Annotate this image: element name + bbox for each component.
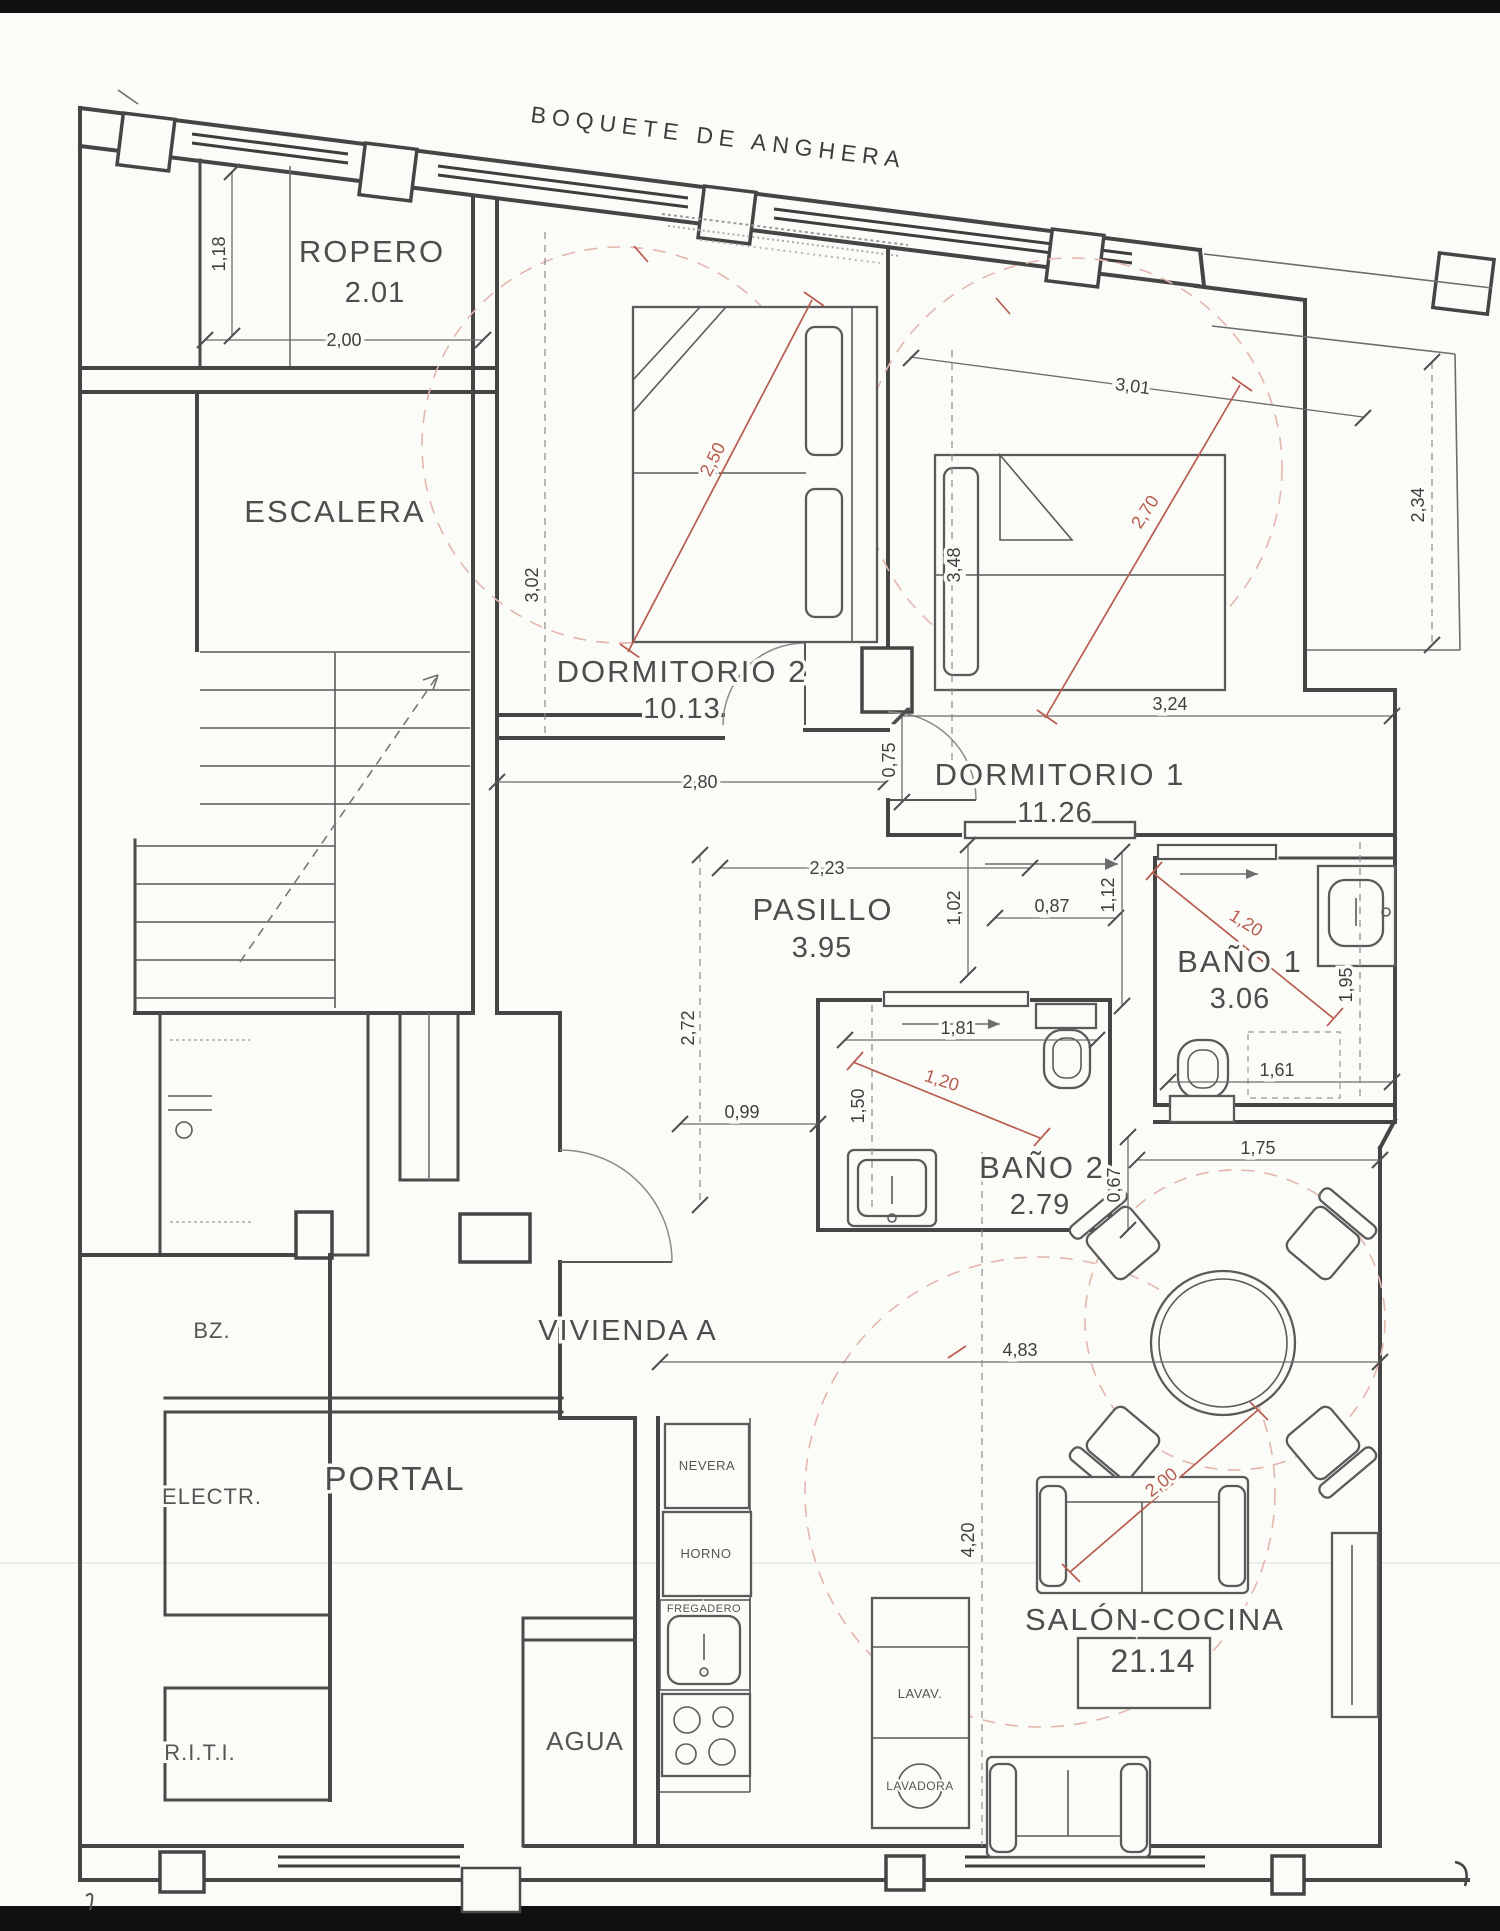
dim-dorm1-side: 3,48	[944, 547, 964, 582]
dim-pas-b: 0,87	[1034, 896, 1069, 916]
nevera-label: NEVERA	[679, 1458, 735, 1473]
dim-bano1-height: 1,95	[1336, 967, 1356, 1002]
bano1-sliding-door	[1158, 845, 1276, 859]
sofa-icon	[1037, 1477, 1248, 1593]
bottom-right-pillar	[1272, 1856, 1304, 1894]
floorplan-drawing: BOQUETE DE ANGHERA	[0, 0, 1500, 1931]
bano1-area: 3.06	[1210, 983, 1270, 1015]
bano1-toilet-icon	[1170, 1040, 1234, 1122]
stove-icon	[662, 1694, 750, 1776]
entrance-step	[462, 1868, 520, 1912]
riti-label: R.I.T.I.	[164, 1740, 236, 1765]
horno-label: HORNO	[681, 1546, 732, 1561]
dim-pasillo-width: 2,23	[809, 858, 844, 878]
bano2-sliding-door	[884, 992, 1028, 1006]
bano2-area: 2.79	[1010, 1189, 1070, 1221]
bano1-sink-icon	[1318, 866, 1395, 966]
dormitorio2-area: 10.13	[643, 693, 721, 725]
dorm1-bed-icon	[935, 455, 1225, 690]
facade-pillar	[117, 113, 175, 171]
dim-terrace-height: 2,34	[1408, 487, 1428, 522]
dim-salon-length: 4,20	[958, 1522, 978, 1557]
lavadora-label: LAVADORA	[886, 1779, 954, 1793]
ropero-label: ROPERO	[299, 234, 445, 269]
dormitorio2-label: DORMITORIO 2	[557, 654, 808, 689]
tv-cabinet-icon	[1332, 1533, 1378, 1717]
dim-jamb: 0,75	[879, 742, 899, 777]
facade-pillar	[359, 143, 417, 201]
vivienda-a-label: VIVIENDA A	[538, 1315, 718, 1347]
dim-bano1-width: 1,61	[1259, 1060, 1294, 1080]
bano1-label: BAÑO 1	[1177, 944, 1303, 979]
escalera-label: ESCALERA	[244, 494, 425, 529]
lavavajillas-label: LAVAV.	[898, 1686, 942, 1701]
kitchen-sink-icon	[668, 1616, 740, 1684]
portal-pillar	[460, 1214, 530, 1262]
floorplan-scan-page: BOQUETE DE ANGHERA	[0, 0, 1500, 1931]
dim-niche-height: 0,67	[1104, 1167, 1124, 1202]
dormitorio1-label: DORMITORIO 1	[935, 757, 1186, 792]
dim-ropero-depth: 1,18	[209, 236, 229, 271]
pasillo-label: PASILLO	[753, 892, 894, 927]
fregadero-label: FREGADERO	[667, 1603, 741, 1615]
dim-ropero-width: 2,00	[326, 330, 361, 350]
dim-bano2-height: 1,50	[848, 1088, 868, 1123]
bano2-label: BAÑO 2	[979, 1150, 1105, 1185]
dim-dorm1-width: 3,24	[1152, 694, 1187, 714]
dim-dorm2-height: 3,02	[522, 567, 542, 602]
salon-area: 21.14	[1110, 1643, 1195, 1679]
dim-salon-width: 4,83	[1002, 1340, 1037, 1360]
bottom-left-pillar	[160, 1852, 204, 1892]
facade-pillar	[1433, 253, 1494, 314]
facade-pillar	[698, 186, 756, 244]
electr-label: ELECTR.	[162, 1484, 262, 1509]
sofa2-icon	[987, 1757, 1150, 1857]
bano2-toilet-icon	[1036, 1004, 1096, 1088]
pasillo-area: 3.95	[792, 932, 852, 964]
dim-hall-length: 2,72	[678, 1010, 698, 1045]
dim-hall-width: 0,99	[724, 1102, 759, 1122]
bz-label: BZ.	[193, 1318, 230, 1343]
dim-niche-width: 1,75	[1240, 1138, 1275, 1158]
agua-label: AGUA	[546, 1726, 624, 1756]
salon-label: SALÓN-COCINA	[1025, 1602, 1285, 1637]
dim-bano2-width: 1,81	[940, 1018, 975, 1038]
portal-label: PORTAL	[325, 1460, 466, 1497]
dim-dorm2-width: 2,80	[682, 772, 717, 792]
dim-pas-a: 1,02	[944, 890, 964, 925]
bano2-sink-icon	[848, 1150, 936, 1226]
ropero-area: 2.01	[345, 277, 405, 309]
dormitorio1-area: 11.26	[1017, 797, 1092, 829]
dorm2-bed-icon	[633, 307, 877, 642]
dim-pas-c: 1,12	[1098, 877, 1118, 912]
